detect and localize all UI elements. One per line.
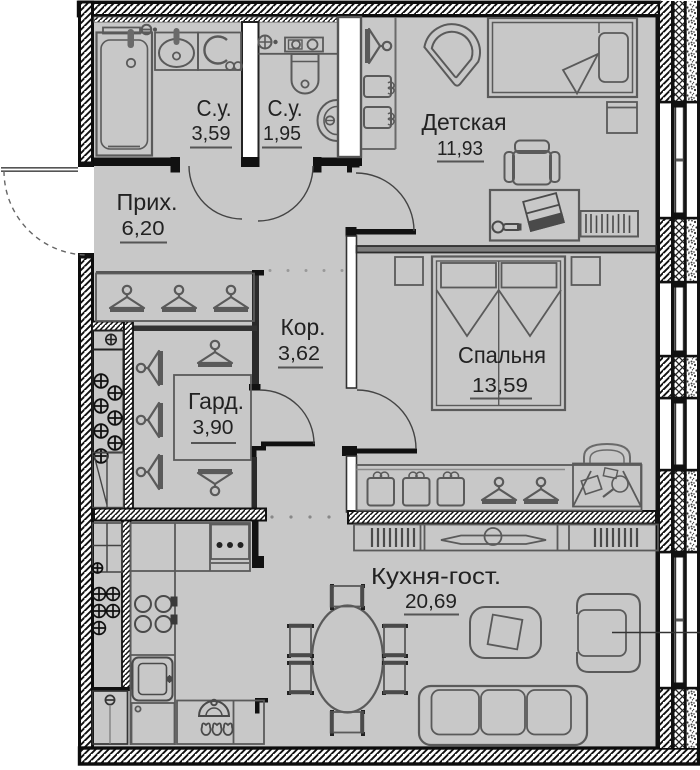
svg-text:С.у.: С.у. [197,95,232,121]
svg-text:Гард.: Гард. [188,388,244,414]
svg-text:3,59: 3,59 [192,122,231,145]
svg-text:3,90: 3,90 [193,416,234,439]
svg-text:Детская: Детская [422,109,507,135]
svg-text:20,69: 20,69 [405,590,457,613]
svg-text:Спальня: Спальня [458,342,546,368]
svg-text:1,95: 1,95 [263,122,301,145]
svg-text:3,62: 3,62 [278,342,320,365]
svg-text:13,59: 13,59 [472,374,528,397]
svg-text:Кухня-гост.: Кухня-гост. [371,563,501,589]
svg-text:С.у.: С.у. [268,95,303,121]
svg-text:6,20: 6,20 [122,217,165,240]
svg-text:11,93: 11,93 [437,137,483,160]
svg-text:Кор.: Кор. [281,314,326,340]
svg-text:Прих.: Прих. [117,189,178,215]
